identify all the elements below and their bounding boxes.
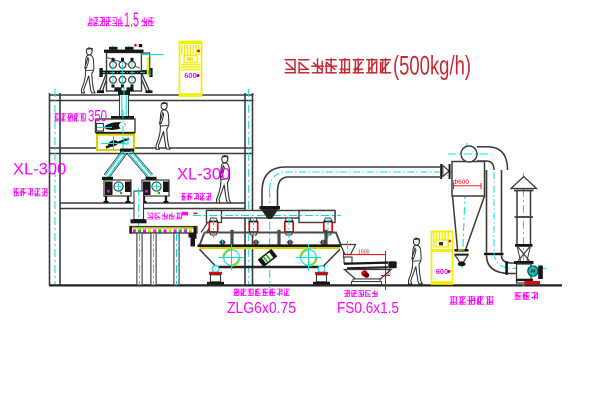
svg-text:600: 600: [436, 267, 449, 276]
svg-text:XL-300: XL-300: [177, 166, 230, 184]
svg-text:FS0.6x1.5: FS0.6x1.5: [337, 300, 399, 317]
svg-text:ZLG6x0.75: ZLG6x0.75: [227, 300, 296, 317]
svg-text:(500kg/h): (500kg/h): [393, 51, 471, 81]
svg-text:1.5: 1.5: [124, 10, 139, 32]
svg-text:XL-300: XL-300: [13, 161, 66, 179]
svg-text:350: 350: [88, 107, 107, 126]
svg-text:Φ600: Φ600: [453, 179, 469, 186]
svg-text:1500: 1500: [358, 250, 370, 256]
svg-text:600: 600: [184, 71, 197, 80]
